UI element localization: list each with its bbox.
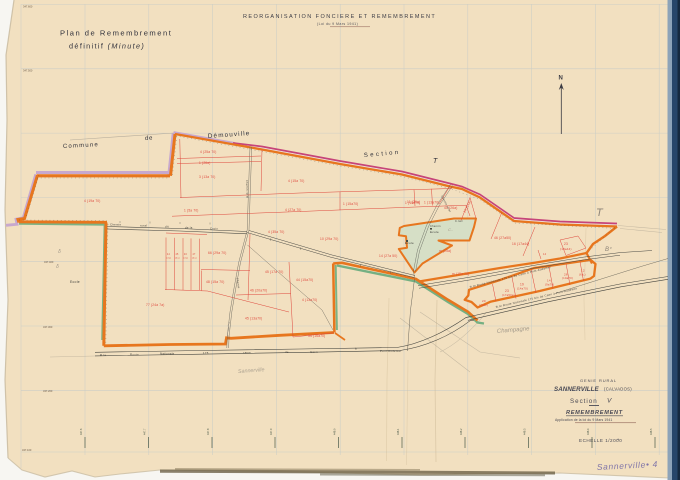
svg-text:REMEMBREMENT: REMEMBREMENT — [566, 410, 623, 416]
svg-text:4 (19a 70): 4 (19a 70) — [84, 199, 101, 203]
svg-text:de: de — [285, 350, 289, 354]
svg-text:447.8: 447.8 — [206, 428, 210, 435]
svg-text:47: 47 — [193, 254, 196, 256]
svg-text:(10a70): (10a70) — [562, 276, 573, 280]
svg-text:came: came — [243, 351, 251, 355]
svg-text:447.6: 447.6 — [79, 428, 83, 435]
svg-text:dit: dit — [165, 225, 169, 229]
svg-text:ECHELLE 1/2000: ECHELLE 1/2000 — [579, 438, 622, 443]
svg-text:GENIE RURAL: GENIE RURAL — [580, 378, 617, 383]
svg-text:(4a): (4a) — [192, 258, 197, 260]
svg-text:1 (13a70): 1 (13a70) — [424, 201, 439, 205]
svg-text:rural: rural — [140, 224, 147, 228]
svg-text:à: à — [355, 347, 357, 351]
svg-text:1 (15a70): 1 (15a70) — [343, 202, 358, 206]
svg-text:45 (13a70): 45 (13a70) — [245, 317, 262, 321]
svg-text:C.lair: C.lair — [455, 219, 463, 223]
svg-text:Ecole: Ecole — [405, 241, 414, 245]
svg-text:448.4: 448.4 — [586, 428, 590, 435]
svg-text:4 (25a 70): 4 (25a 70) — [200, 150, 217, 154]
svg-text:4 (35a 70): 4 (35a 70) — [268, 230, 285, 234]
svg-text:448.1: 448.1 — [396, 428, 400, 435]
svg-text:(9a70): (9a70) — [545, 282, 554, 286]
svg-text:T: T — [433, 158, 438, 165]
svg-text:Plan de Remembrement: Plan de Remembrement — [60, 29, 172, 38]
svg-text:48 (15a 70): 48 (15a 70) — [206, 280, 225, 284]
svg-text:34 (16a70): 34 (16a70) — [308, 334, 325, 338]
svg-text:347.200: 347.200 — [43, 389, 53, 393]
svg-text:23: 23 — [564, 242, 568, 246]
svg-text:(4a): (4a) — [184, 258, 189, 260]
svg-text:3 (13a 70): 3 (13a 70) — [199, 175, 216, 179]
svg-text:V: V — [607, 398, 612, 405]
svg-text:347.400: 347.400 — [44, 260, 54, 264]
svg-text:SANNERVILLE: SANNERVILLE — [554, 386, 600, 393]
svg-text:Ecole: Ecole — [70, 280, 80, 284]
svg-text:(CALVADOS): (CALVADOS) — [604, 387, 632, 392]
svg-text:(19a44): (19a44) — [560, 247, 572, 251]
svg-text:de la: de la — [185, 226, 193, 230]
svg-text:Chemin: Chemin — [110, 223, 122, 227]
svg-text:(4a): (4a) — [167, 258, 172, 260]
svg-text:c: c — [610, 245, 612, 250]
svg-text:(14a70): (14a70) — [517, 286, 528, 290]
svg-text:Chemin rural: Chemin rural — [245, 180, 250, 199]
svg-text:δ: δ — [58, 249, 61, 255]
svg-text:448.3: 448.3 — [523, 428, 527, 435]
svg-text:(17a50a): (17a50a) — [502, 293, 515, 297]
svg-text:Route: Route — [130, 352, 139, 356]
svg-text:Pont-Audemer: Pont-Audemer — [380, 349, 402, 353]
svg-text:347.300: 347.300 — [43, 325, 53, 329]
svg-text:(Loi du 9 Mars 1941): (Loi du 9 Mars 1941) — [317, 22, 358, 26]
svg-text:77 (24a 7a): 77 (24a 7a) — [146, 303, 165, 307]
svg-text:46 (20a70): 46 (20a70) — [250, 289, 267, 293]
svg-text:Application de la loi du 9 Mar: Application de la loi du 9 Mars 1941 — [555, 418, 612, 422]
svg-text:14 (27a 50): 14 (27a 50) — [379, 254, 398, 258]
svg-text:(7a4c): (7a4c) — [479, 303, 488, 307]
svg-text:11 (26a): 11 (26a) — [407, 200, 420, 204]
svg-text:46 (27a50): 46 (27a50) — [494, 236, 511, 240]
svg-text:447.7: 447.7 — [143, 428, 147, 435]
svg-text:Nationale: Nationale — [160, 352, 175, 356]
svg-text:R.te: R.te — [100, 353, 106, 357]
svg-text:4 (15a 70): 4 (15a 70) — [288, 179, 305, 183]
svg-text:46: 46 — [184, 254, 187, 256]
svg-text:347.600: 347.600 — [23, 5, 33, 9]
svg-text:Ecole: Ecole — [430, 230, 439, 234]
svg-text:REORGANISATION FONCIERE ET: REORGANISATION FONCIERE ET REMEMBREMENT — [243, 14, 436, 20]
svg-text:m (19a 70): m (19a 70) — [452, 272, 469, 276]
svg-text:C..: C.. — [448, 227, 453, 232]
svg-text:1 (26a): 1 (26a) — [199, 161, 211, 165]
svg-text:(4a): (4a) — [175, 258, 180, 260]
svg-text:B: B — [605, 247, 609, 253]
svg-text:Croix: Croix — [210, 227, 218, 231]
svg-text:448.0: 448.0 — [333, 428, 337, 435]
svg-text:N: N — [559, 76, 563, 82]
svg-text:175: 175 — [203, 351, 209, 355]
svg-text:10 (29a 70): 10 (29a 70) — [320, 237, 339, 241]
svg-text:Caen: Caen — [310, 350, 318, 354]
svg-text:347.500: 347.500 — [23, 69, 33, 73]
svg-text:4 (27a 70): 4 (27a 70) — [285, 208, 302, 212]
svg-text:448.5: 448.5 — [649, 428, 653, 435]
svg-text:1 (5a 70): 1 (5a 70) — [184, 209, 199, 213]
svg-text:m (25a): m (25a) — [439, 249, 451, 253]
svg-text:(6a,): (6a,) — [579, 272, 586, 276]
svg-text:66 (29a 70): 66 (29a 70) — [208, 251, 227, 255]
svg-text:de: de — [145, 136, 154, 142]
svg-text:44: 44 — [167, 254, 170, 256]
svg-text:44 (15a70): 44 (15a70) — [296, 278, 313, 282]
svg-text:Section: Section — [570, 398, 598, 405]
svg-text:45 (17a 70): 45 (17a 70) — [265, 270, 284, 274]
svg-text:définitif (Minute): définitif (Minute) — [69, 42, 145, 51]
svg-text:16 (17a44): 16 (17a44) — [512, 242, 529, 246]
svg-text:45: 45 — [176, 254, 179, 256]
svg-text:14: 14 — [543, 252, 547, 256]
svg-text:448.2: 448.2 — [459, 428, 463, 435]
svg-text:δ: δ — [56, 264, 59, 270]
svg-text:Chemin: Chemin — [430, 224, 441, 228]
svg-text:447.9: 447.9 — [269, 428, 273, 435]
svg-text:347.100: 347.100 — [22, 448, 32, 452]
svg-text:4 (13a70): 4 (13a70) — [302, 298, 317, 302]
